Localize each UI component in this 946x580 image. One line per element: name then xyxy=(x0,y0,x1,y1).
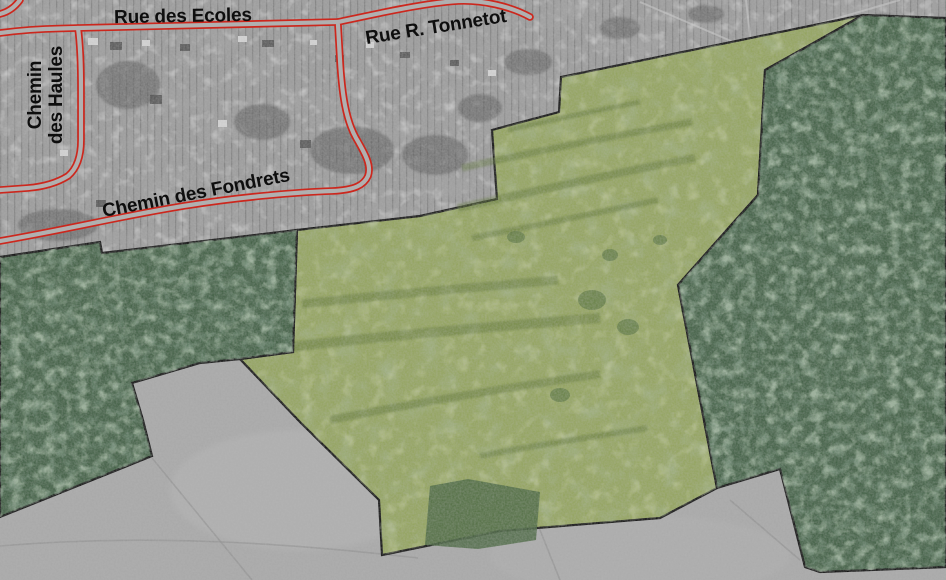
map-canvas: Rue des Ecoles Rue R. Tonnetot Chemin de… xyxy=(0,0,946,580)
road-label-chemin-des-haules-line2: des Haules xyxy=(46,46,67,144)
road-label-rue-des-ecoles: Rue des Ecoles xyxy=(114,5,252,28)
photo-grain-overlay xyxy=(0,0,946,580)
aerial-map: Rue des Ecoles Rue R. Tonnetot Chemin de… xyxy=(0,0,946,580)
road-label-chemin-des-haules-line1: Chemin xyxy=(25,61,46,129)
